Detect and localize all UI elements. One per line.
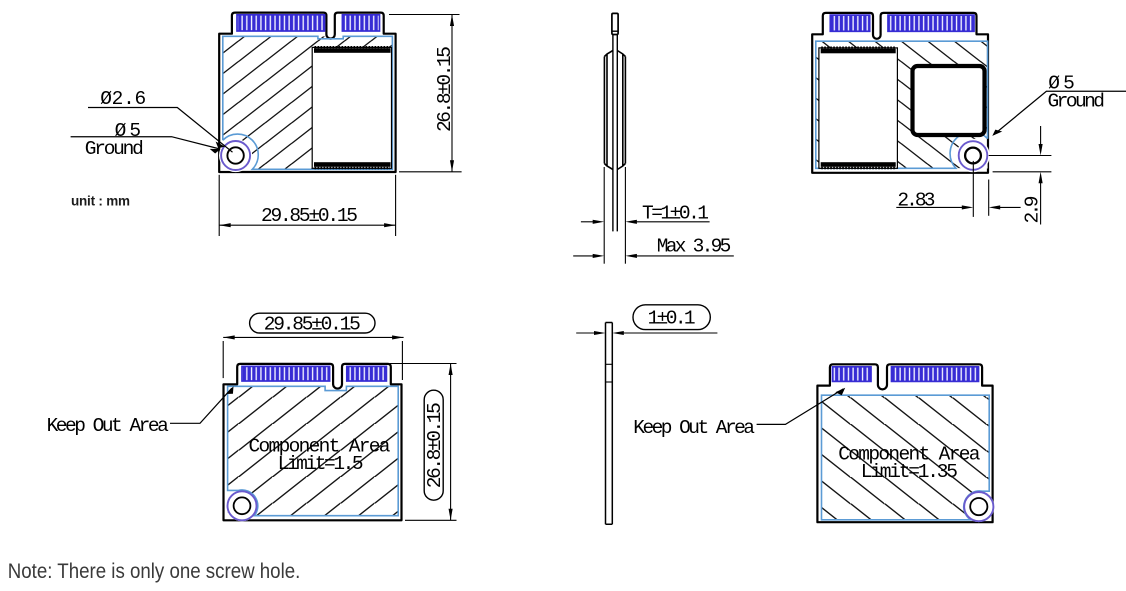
svg-text:unit : mm: unit : mm: [71, 194, 130, 209]
svg-text:29.85±0.15: 29.85±0.15: [264, 313, 361, 335]
svg-text:2.83: 2.83: [897, 190, 935, 212]
svg-text:Note: There is only one screw: Note: There is only one screw hole.: [8, 559, 301, 583]
svg-text:Ground: Ground: [1048, 90, 1106, 112]
svg-text:Keep Out Area: Keep Out Area: [47, 415, 169, 437]
svg-text:Ø2.6: Ø2.6: [100, 88, 146, 110]
svg-text:29.85±0.15: 29.85±0.15: [261, 205, 358, 227]
svg-text:T=1±0.1: T=1±0.1: [642, 203, 709, 225]
svg-text:Limit=1.5: Limit=1.5: [278, 453, 364, 475]
svg-text:26.8±0.15: 26.8±0.15: [424, 402, 446, 488]
svg-text:Keep Out Area: Keep Out Area: [633, 417, 755, 439]
svg-text:Max 3.95: Max 3.95: [657, 235, 732, 257]
svg-text:26.8±0.15: 26.8±0.15: [434, 46, 456, 132]
svg-text:1±0.1: 1±0.1: [648, 308, 696, 330]
svg-text:Ground: Ground: [85, 138, 144, 160]
svg-text:2.9: 2.9: [1021, 196, 1043, 224]
svg-text:Limit=1.35: Limit=1.35: [861, 461, 958, 483]
